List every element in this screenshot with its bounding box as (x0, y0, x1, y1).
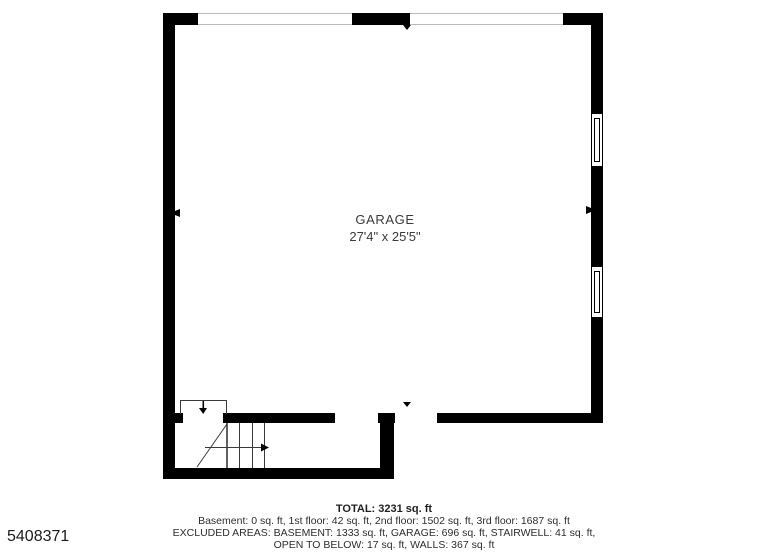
floor-plan-page: GARAGE 27'4" x 25'5" TOTAL: 3231 sq. ft … (0, 0, 768, 554)
total-area-line: TOTAL: 3231 sq. ft (64, 503, 704, 515)
bottom-door-arrow-icon (403, 402, 411, 407)
area-summary: TOTAL: 3231 sq. ft Basement: 0 sq. ft, 1… (64, 503, 704, 551)
excluded-areas-line-2: OPEN TO BELOW: 17 sq. ft, WALLS: 367 sq.… (64, 539, 704, 551)
excluded-areas-line-1: EXCLUDED AREAS: BASEMENT: 1333 sq. ft, G… (64, 527, 704, 539)
stair-down-arrow-icon (199, 401, 207, 414)
room-dimensions-label: 27'4" x 25'5" (285, 229, 485, 244)
stairwell (181, 401, 270, 469)
right-wall (591, 13, 603, 423)
stairwell-right-wall (380, 413, 394, 473)
top-door-arrow-icon (403, 25, 411, 30)
stairwell-bottom-wall (163, 468, 394, 479)
stair-run-arrow-icon (205, 444, 269, 452)
window-lower (592, 267, 603, 318)
floor-plan-drawing (0, 0, 768, 554)
window-upper (592, 114, 603, 167)
walls (163, 13, 603, 479)
top-wall-segment-middle (352, 13, 410, 25)
left-wall (163, 13, 175, 479)
bottom-wall-segment-mid (223, 413, 335, 423)
stair-break-line (197, 424, 227, 467)
room-name-label: GARAGE (285, 212, 485, 227)
bottom-wall-stub-left (163, 413, 183, 423)
floor-areas-line: Basement: 0 sq. ft, 1st floor: 42 sq. ft… (64, 515, 704, 527)
top-wall-segment-left (163, 13, 198, 25)
bottom-wall-segment-right (437, 413, 591, 423)
listing-id: 5408371 (7, 528, 69, 546)
